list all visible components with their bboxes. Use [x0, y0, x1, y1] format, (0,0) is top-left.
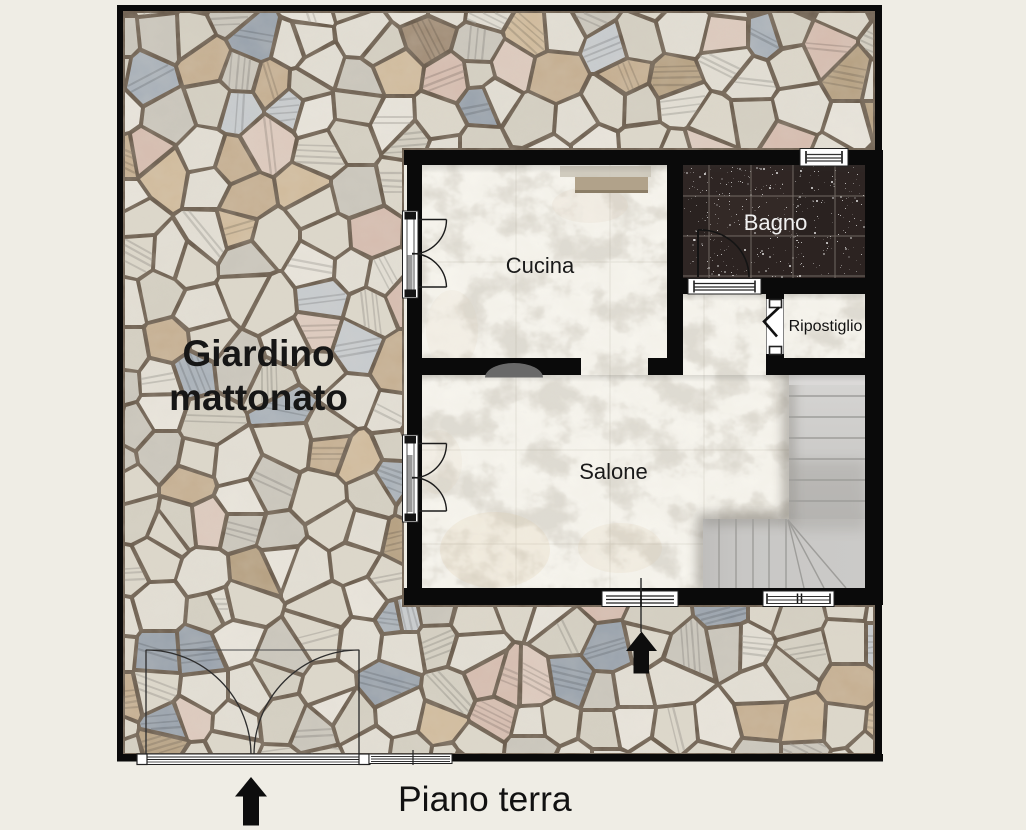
svg-text:Giardino: Giardino [182, 333, 334, 374]
svg-text:mattonato: mattonato [169, 377, 348, 418]
svg-text:Salone: Salone [579, 459, 648, 484]
svg-text:Cucina: Cucina [506, 253, 575, 278]
svg-text:Bagno: Bagno [744, 210, 808, 235]
svg-text:Piano terra: Piano terra [398, 779, 572, 819]
svg-text:Ripostiglio: Ripostiglio [789, 318, 863, 335]
